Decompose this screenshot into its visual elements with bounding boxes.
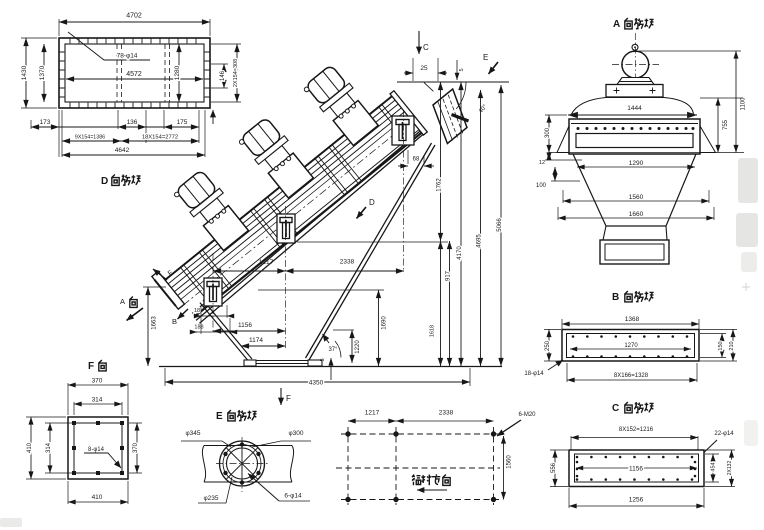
svg-text:1690: 1690 [382, 316, 388, 330]
svg-text:1156: 1156 [629, 466, 643, 473]
svg-text:18-φ14: 18-φ14 [524, 371, 544, 377]
svg-text:370: 370 [92, 378, 103, 385]
svg-text:1280: 1280 [174, 65, 181, 80]
svg-text:6-M20: 6-M20 [518, 412, 536, 418]
svg-text:φ300: φ300 [288, 430, 303, 437]
svg-text:1220: 1220 [355, 340, 361, 354]
svg-text:18: 18 [194, 308, 200, 314]
svg-text:210: 210 [729, 341, 735, 350]
svg-text:4695: 4695 [477, 234, 483, 248]
svg-text:1174: 1174 [249, 337, 263, 344]
svg-text:B: B [172, 317, 177, 326]
svg-text:454: 454 [711, 462, 717, 471]
svg-text:1660: 1660 [629, 211, 644, 218]
svg-text:1368: 1368 [625, 316, 640, 323]
svg-text:1256: 1256 [629, 497, 644, 504]
svg-text:B: B [612, 292, 619, 303]
svg-text:8X166=1328: 8X166=1328 [614, 373, 649, 379]
svg-text:314: 314 [92, 397, 103, 404]
svg-text:1100: 1100 [741, 97, 747, 111]
svg-text:φ235: φ235 [203, 495, 218, 502]
svg-text:1156: 1156 [238, 322, 252, 329]
svg-text:C: C [612, 403, 619, 414]
svg-text:173: 173 [40, 119, 51, 126]
svg-text:410: 410 [92, 494, 103, 501]
svg-text:4702: 4702 [126, 13, 142, 20]
svg-text:C: C [423, 43, 429, 52]
svg-text:8X152=1216: 8X152=1216 [619, 427, 654, 433]
svg-text:1270: 1270 [624, 343, 638, 349]
svg-text:300: 300 [545, 127, 551, 138]
svg-text:755: 755 [723, 119, 729, 130]
svg-text:18X154=2772: 18X154=2772 [142, 135, 178, 141]
svg-text:5: 5 [459, 68, 465, 71]
svg-text:4642: 4642 [115, 147, 130, 154]
svg-text:E: E [483, 53, 488, 62]
svg-text:1290: 1290 [629, 160, 644, 167]
svg-text:1663: 1663 [152, 316, 158, 330]
svg-text:4350: 4350 [309, 380, 324, 387]
svg-text:φ345: φ345 [185, 430, 200, 437]
svg-text:917: 917 [446, 270, 452, 281]
svg-text:37°: 37° [328, 347, 338, 353]
svg-text:188: 188 [194, 325, 203, 331]
svg-text:1560: 1560 [629, 194, 644, 201]
svg-text:12: 12 [539, 160, 545, 166]
svg-text:1618: 1618 [430, 325, 436, 337]
svg-text:410: 410 [27, 442, 33, 453]
svg-text:E: E [216, 411, 223, 422]
svg-text:1217: 1217 [259, 259, 274, 266]
svg-text:78-φ14: 78-φ14 [117, 53, 138, 60]
svg-text:5: 5 [320, 358, 326, 361]
svg-text:1560: 1560 [507, 455, 513, 469]
svg-text:2338: 2338 [340, 259, 355, 266]
svg-text:A: A [120, 297, 125, 306]
svg-text:5066: 5066 [497, 218, 503, 232]
svg-text:314: 314 [46, 442, 52, 453]
svg-text:4170: 4170 [457, 246, 463, 260]
svg-text:8-φ14: 8-φ14 [88, 447, 105, 453]
svg-text:25: 25 [420, 65, 428, 72]
svg-text:146: 146 [220, 70, 226, 81]
svg-text:2X154=308: 2X154=308 [233, 59, 239, 87]
svg-text:4572: 4572 [126, 71, 142, 78]
svg-text:F: F [286, 394, 291, 403]
svg-text:175: 175 [177, 119, 188, 126]
svg-text:2X132: 2X132 [727, 461, 733, 476]
svg-text:1370: 1370 [39, 65, 46, 80]
svg-text:6-φ14: 6-φ14 [284, 493, 302, 500]
svg-text:9X154=1386: 9X154=1386 [75, 135, 105, 141]
svg-text:D: D [101, 176, 108, 187]
svg-text:A: A [613, 19, 620, 30]
svg-text:1444: 1444 [627, 105, 642, 112]
svg-text:250: 250 [545, 340, 551, 351]
svg-text:370: 370 [133, 442, 139, 453]
svg-text:D: D [369, 198, 375, 207]
svg-text:150: 150 [718, 341, 724, 350]
svg-text:1217: 1217 [365, 410, 380, 417]
svg-text:22-φ14: 22-φ14 [714, 431, 734, 437]
svg-text:1762: 1762 [437, 178, 443, 192]
svg-text:2338: 2338 [439, 410, 454, 417]
svg-text:68: 68 [413, 157, 420, 163]
svg-text:100: 100 [536, 183, 547, 189]
svg-text:136: 136 [127, 119, 138, 126]
svg-text:556: 556 [551, 462, 557, 473]
svg-text:F: F [88, 361, 94, 372]
svg-text:1430: 1430 [21, 65, 28, 80]
